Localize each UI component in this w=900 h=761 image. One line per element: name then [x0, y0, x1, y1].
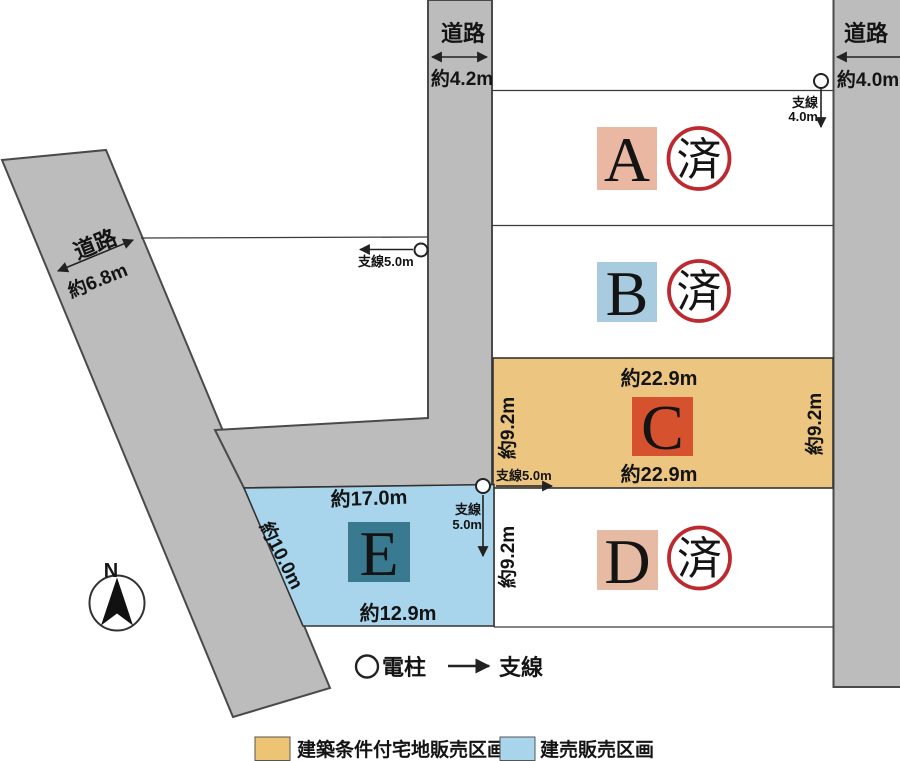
west-boundary-line [141, 237, 428, 238]
legend-label-conditional: 建築条件付宅地販売区画 [297, 738, 506, 761]
plot-b-letter: B [606, 258, 649, 329]
utility-pole-west [415, 244, 428, 257]
legend-label-built: 建売販売区画 [540, 738, 654, 761]
plot-e-letter: E [359, 518, 398, 589]
right-road-label: 道路 [844, 21, 889, 46]
site-plan: 約22.9m 約22.9m 約9.2m 約9.2m 約17.0m 約12.9m … [0, 0, 900, 761]
plot-a-letter: A [604, 124, 650, 195]
guy-wire-e-label-2: 5.0m [452, 517, 482, 532]
plot-a-sold-stamp: 済 [676, 135, 721, 185]
guy-wire-ne-label-2: 4.0m [788, 109, 818, 124]
utility-pole-center [476, 479, 490, 493]
plot-c-bottom-dim: 約22.9m [621, 462, 698, 486]
legend-swatch-built [500, 737, 535, 761]
plot-e-bottom-dim: 約12.9m [360, 601, 437, 625]
guy-wire-c-label: 支線5.0m [495, 468, 552, 483]
site-plan-svg: 約22.9m 約22.9m 約9.2m 約9.2m 約17.0m 約12.9m … [0, 0, 900, 761]
plot-c-right-dim: 約9.2m [803, 393, 826, 455]
top-road-label: 道路 [441, 21, 486, 46]
legend-pole-label: 電柱 [382, 655, 426, 680]
top-road-width: 約4.2m [431, 67, 493, 90]
plot-b-sold-stamp: 済 [676, 267, 721, 317]
guy-wire-west-label: 支線5.0m [357, 254, 414, 269]
plot-c-left-dim: 約9.2m [496, 397, 519, 459]
compass-north-label: N [104, 560, 118, 582]
plot-d-sold-stamp: 済 [677, 534, 722, 584]
legend-pole-icon [356, 656, 378, 678]
legend-wire-label: 支線 [499, 655, 543, 680]
plot-e-top-dim: 約17.0m [330, 485, 408, 512]
legend-swatch-conditional [255, 737, 290, 761]
utility-pole-northeast [814, 74, 828, 88]
guy-wire-e-label-1: 支線 [454, 502, 482, 517]
plot-d-letter: D [604, 526, 650, 597]
plot-c-top-dim: 約22.9m [621, 366, 698, 390]
plot-c-letter: C [641, 392, 684, 463]
right-road-width: 約4.0m [837, 68, 899, 91]
guy-wire-ne-label-1: 支線 [791, 95, 819, 110]
plot-d-left-dim: 約9.2m [496, 526, 519, 588]
right-road [834, 0, 900, 687]
